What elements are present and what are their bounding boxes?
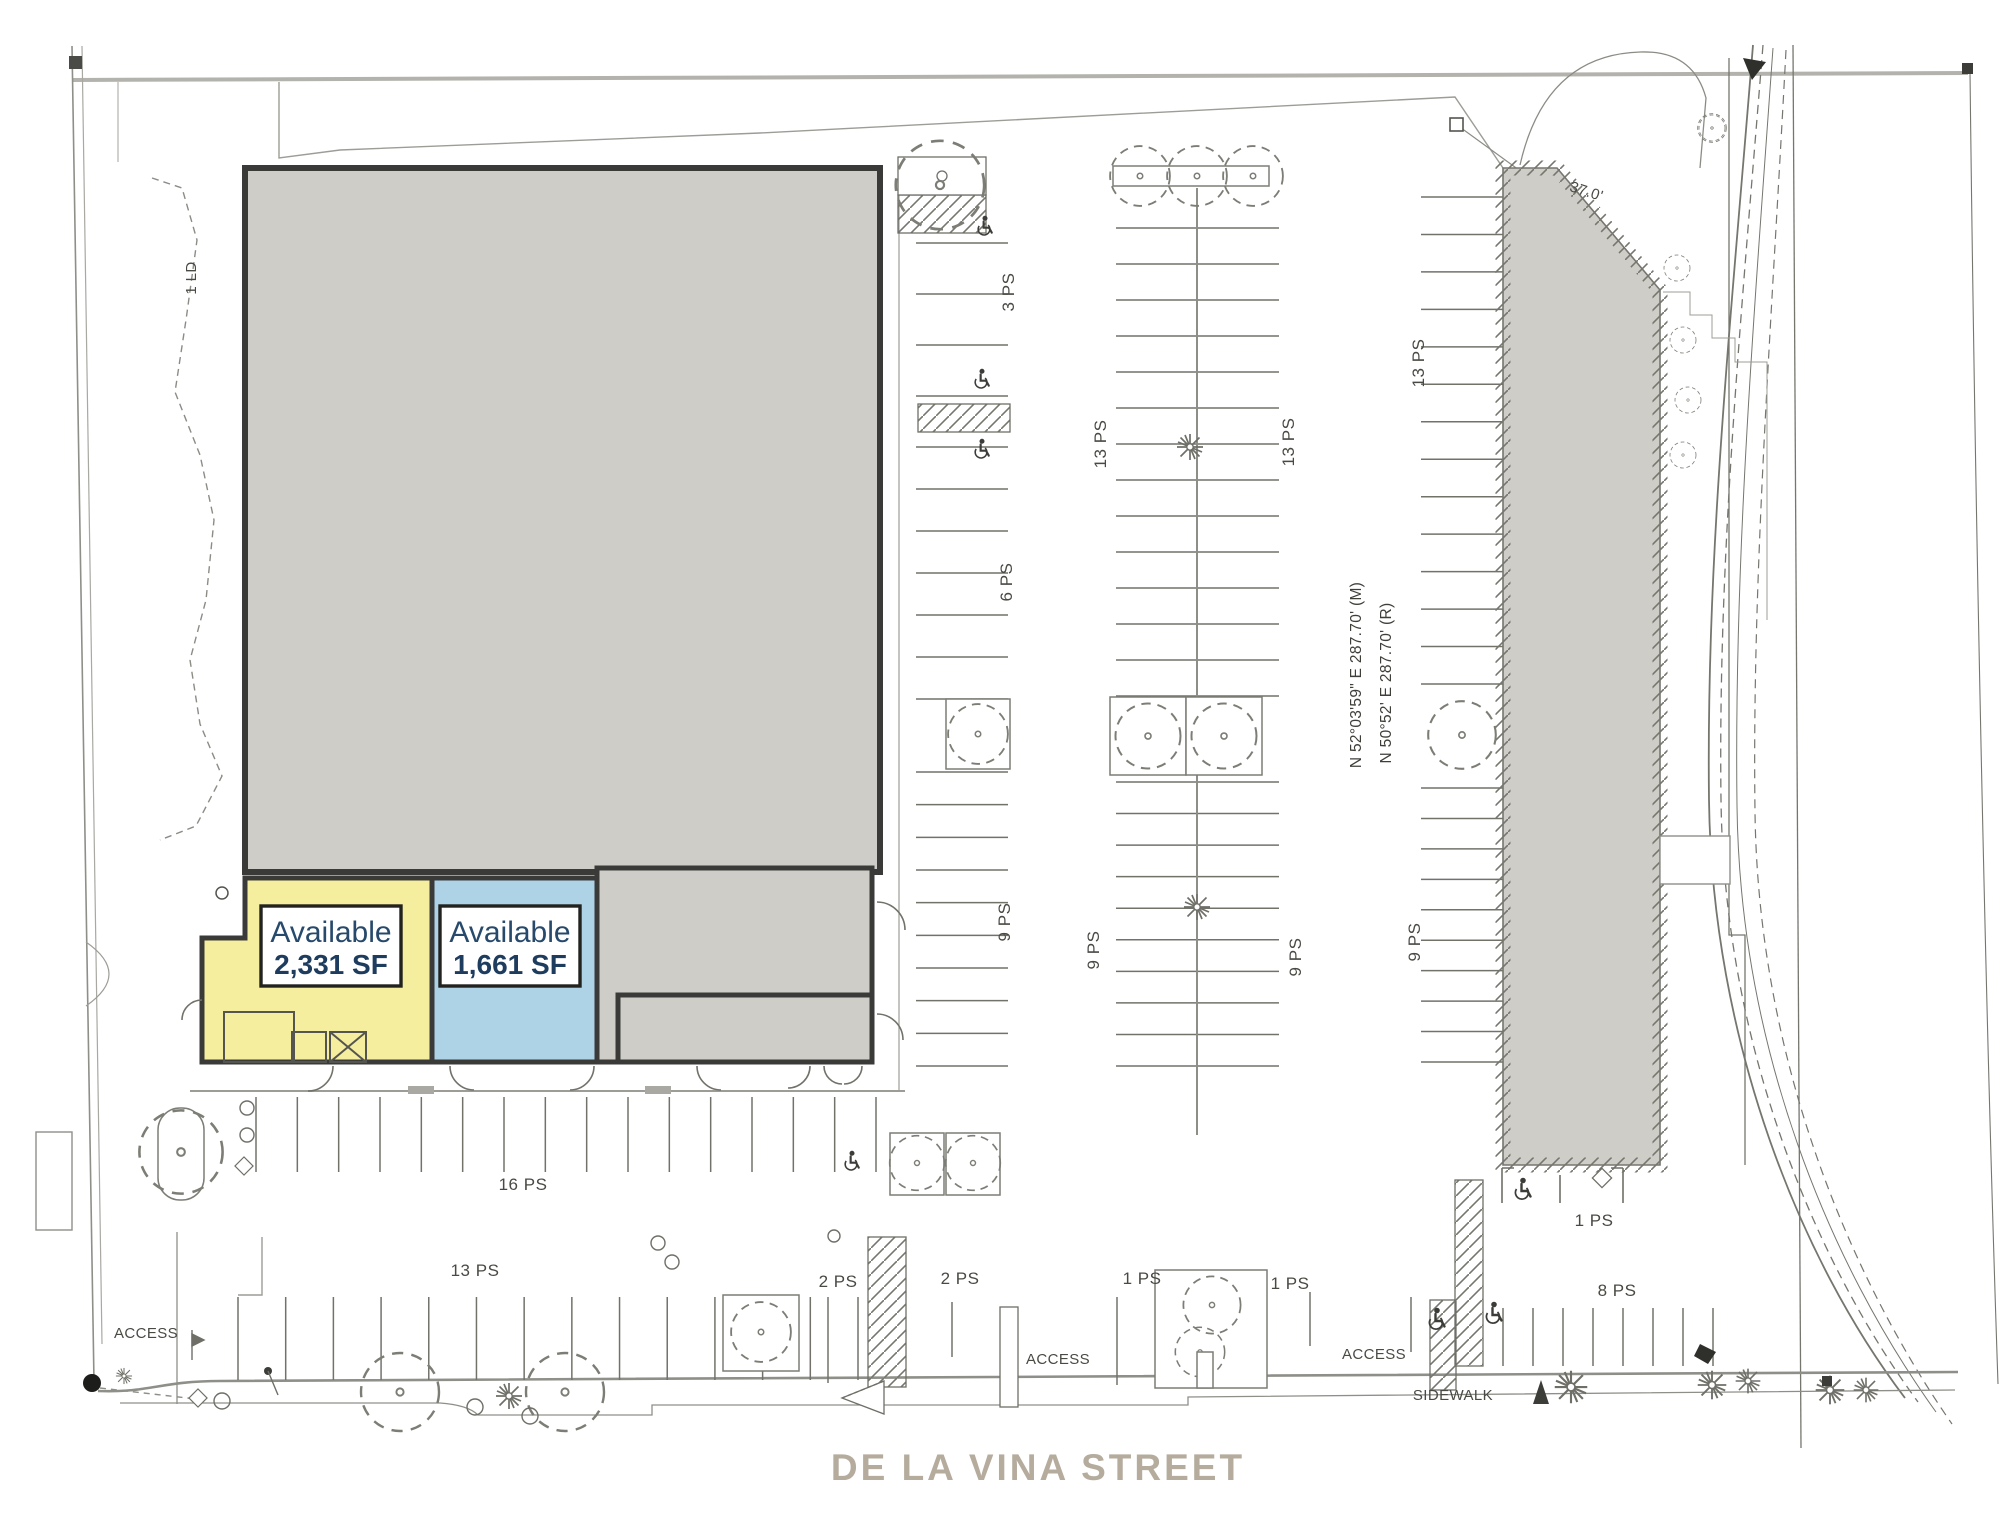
parking-label: 6 PS bbox=[997, 563, 1016, 602]
parking-label: 1 PS bbox=[1271, 1274, 1310, 1293]
parking-label: 13 PS bbox=[1409, 339, 1428, 388]
parking-label: 1 PS bbox=[1575, 1211, 1614, 1230]
bearing-record: N 50°52' E 287.70' (R) bbox=[1378, 603, 1395, 764]
parking-label: 13 PS bbox=[1091, 420, 1110, 469]
access-label: ACCESS bbox=[1342, 1346, 1406, 1363]
site-plan-canvas: Available 2,331 SF Available 1,661 SF 3 … bbox=[0, 0, 2002, 1516]
sidewalk-label: SIDEWALK bbox=[1413, 1387, 1493, 1404]
parking-label: 8 PS bbox=[1598, 1281, 1637, 1300]
parking-label: 13 PS bbox=[451, 1261, 500, 1280]
parking-label: 9 PS bbox=[1405, 923, 1424, 962]
parking-label: 1 PS bbox=[1123, 1269, 1162, 1288]
corner-note-label: 1 LD bbox=[183, 261, 200, 294]
access-label: ACCESS bbox=[114, 1325, 178, 1342]
unit-gray bbox=[597, 868, 872, 1062]
access-labels: ACCESS ACCESS ACCESS SIDEWALK bbox=[114, 1325, 1493, 1404]
parking-label: 9 PS bbox=[1084, 931, 1103, 970]
parking-label: 9 PS bbox=[995, 903, 1014, 942]
parking-label: 3 PS bbox=[999, 273, 1018, 312]
parking-label: 16 PS bbox=[499, 1175, 548, 1194]
access-label: ACCESS bbox=[1026, 1351, 1090, 1368]
parking-label: 2 PS bbox=[819, 1272, 858, 1291]
unit2-status: Available bbox=[449, 916, 570, 949]
parking-label: 2 PS bbox=[941, 1269, 980, 1288]
parking-label: 9 PS bbox=[1286, 938, 1305, 977]
unit1-label: Available 2,331 SF bbox=[261, 906, 401, 986]
unit2-area: 1,661 SF bbox=[453, 949, 567, 980]
unit1-area: 2,331 SF bbox=[274, 949, 388, 980]
unit1-status: Available bbox=[270, 916, 391, 949]
right-building bbox=[1503, 168, 1730, 1165]
right-edge-tree-symbols bbox=[1664, 114, 1726, 468]
bearing-measured: N 52°03'59" E 287.70' (M) bbox=[1348, 582, 1365, 768]
site-plan: Available 2,331 SF Available 1,661 SF 3 … bbox=[0, 0, 2002, 1516]
parking-label: 13 PS bbox=[1279, 418, 1298, 467]
street-name: DE LA VINA STREET bbox=[831, 1447, 1245, 1488]
unit2-label: Available 1,661 SF bbox=[440, 906, 580, 986]
